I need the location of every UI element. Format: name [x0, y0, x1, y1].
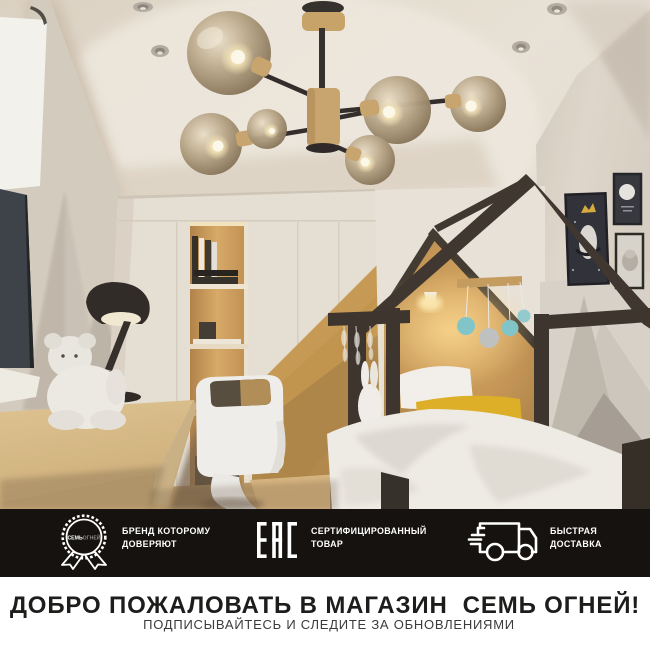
svg-text:СЕМЬОГНЕЙ: СЕМЬОГНЕЙ: [67, 533, 100, 541]
